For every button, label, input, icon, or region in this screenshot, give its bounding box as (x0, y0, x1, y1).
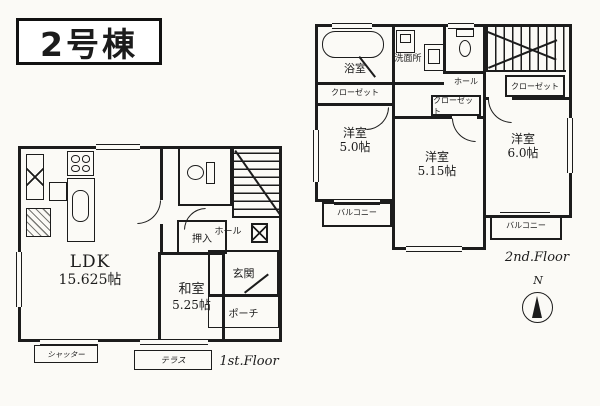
shutter-box: シャッター (34, 345, 98, 363)
toilet-tank-icon (206, 162, 215, 184)
shoe-cabinet-box (251, 223, 268, 243)
washroom-label: 洗面所 (390, 54, 426, 65)
floorplan-page: 2号棟 LDK 15.625帖 和室 5.25帖 押入 ホール 玄関 ポーチ (0, 0, 600, 406)
closet-mid-label: クローゼット (433, 95, 479, 117)
washer-box (396, 30, 415, 53)
kitchen-hatch-box (26, 208, 51, 237)
compass-needle (532, 296, 542, 318)
floor1-wall (160, 146, 163, 200)
vanity-inner (428, 49, 440, 64)
toilet-room-1f (178, 146, 232, 206)
ldk-room-label: LDK 15.625帖 (40, 252, 140, 289)
room3-label: 洋室 6.0帖 (488, 132, 558, 161)
porch-area: ポーチ (208, 296, 279, 328)
room2-label: 洋室 5.15帖 (402, 150, 472, 179)
pantry-hatch-box (26, 154, 44, 200)
floor2-wall (392, 82, 444, 85)
floor2-wall (512, 97, 572, 100)
room1-label: 洋室 5.0帖 (318, 126, 392, 155)
terrace-box: テラス (134, 350, 212, 370)
vanity-icon (424, 44, 444, 71)
bathtub-icon (322, 31, 384, 58)
floor1-caption: 1st.Floor (213, 354, 285, 370)
floor2-wall (395, 116, 452, 119)
ldk-size: 15.625帖 (40, 272, 140, 289)
genkan-area: 玄関 (208, 250, 279, 296)
floor2-wall (318, 82, 392, 85)
sink-icon (72, 190, 89, 222)
floor2-wall (318, 103, 392, 106)
floor2-wall (443, 24, 446, 74)
room2-size: 5.15帖 (402, 164, 472, 178)
shutter-label: シャッター (47, 349, 85, 360)
ldk-name: LDK (40, 252, 140, 272)
toilet2f-tank-icon (456, 29, 474, 37)
porch-label: ポーチ (229, 305, 259, 320)
balcony-right-label: バルコニー (490, 221, 562, 231)
balcony-left-label: バルコニー (322, 208, 392, 218)
stairs-2f (486, 27, 566, 72)
genkan-label: 玄関 (233, 265, 255, 281)
window (567, 118, 573, 173)
toilet2f-bowl-icon (459, 40, 471, 57)
floor2-wall (477, 116, 486, 119)
window (448, 23, 474, 29)
closet-mid: クローゼット (431, 95, 481, 116)
closet-stairs: クローゼット (505, 75, 565, 97)
closet-bath-label: クローゼット (318, 88, 392, 98)
room2-name: 洋室 (402, 150, 472, 164)
compass-north-label: N (528, 274, 548, 287)
room3-size: 6.0帖 (488, 146, 558, 160)
hall-1f-label: ホール (206, 227, 250, 238)
floor2-wall (443, 71, 486, 74)
window (332, 23, 372, 29)
floor1-wall (160, 224, 163, 254)
hall-2f-label: ホール (450, 77, 482, 87)
window (16, 252, 22, 307)
bath-label: 浴室 (318, 62, 392, 75)
washer-inner (400, 34, 411, 43)
building-title: 2号棟 (40, 18, 138, 66)
window (140, 339, 208, 345)
room1-size: 5.0帖 (318, 140, 392, 154)
stove-icon (67, 151, 94, 176)
closet-stairs-label: クローゼット (511, 81, 559, 92)
room1-name: 洋室 (318, 126, 392, 140)
window (313, 130, 319, 182)
floor2-caption: 2nd.Floor (498, 250, 576, 266)
window (406, 246, 462, 252)
kitchen-cabinet-box (49, 182, 67, 201)
building-title-box: 2号棟 (16, 18, 162, 65)
room3-name: 洋室 (488, 132, 558, 146)
terrace-label: テラス (160, 354, 185, 366)
toilet-bowl-icon (187, 165, 204, 180)
window (96, 144, 140, 150)
